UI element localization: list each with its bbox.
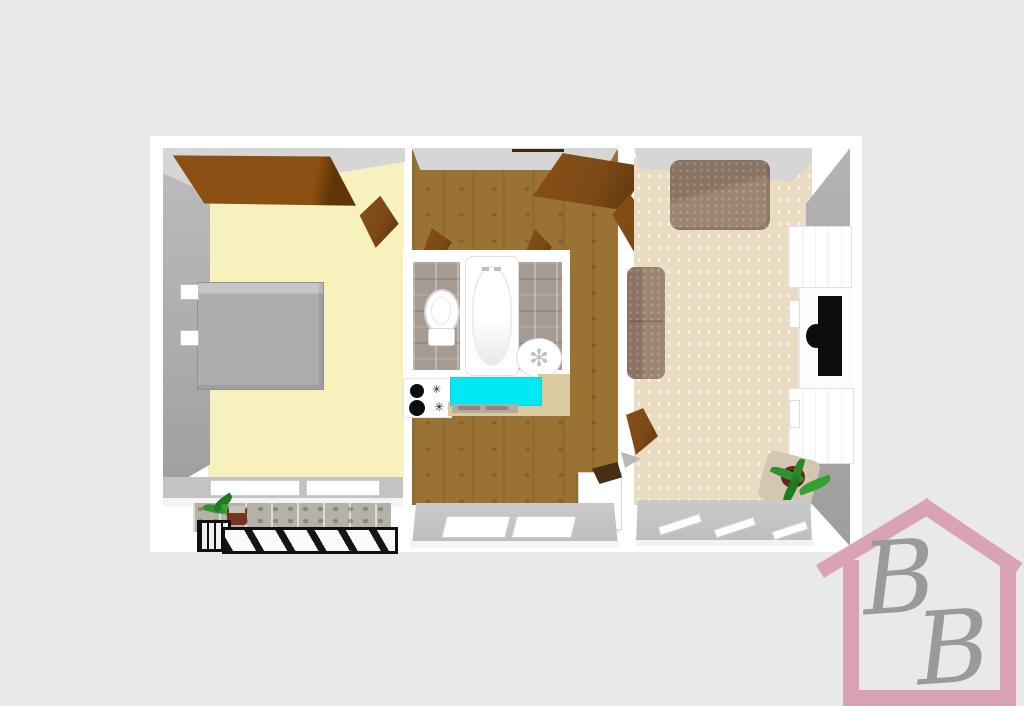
stove-burner <box>409 400 425 416</box>
bathtub-faucet <box>494 267 501 271</box>
bathtub-basin <box>472 266 512 366</box>
tv-unit-upper-cabinet <box>788 226 852 288</box>
living-window-sill <box>636 540 814 546</box>
sofa <box>670 160 770 230</box>
stove-burner <box>410 384 424 398</box>
round-sink: ✻ <box>516 338 562 378</box>
stove-knob-icon: ✳ <box>432 384 441 395</box>
double-bed <box>197 282 324 390</box>
bedroom-window-pane <box>210 480 300 496</box>
toilet-bowl <box>431 297 451 325</box>
entry-door-frame <box>512 149 564 152</box>
bed-pillow <box>180 330 199 346</box>
hallway-window-pane <box>441 516 510 538</box>
sink-flower-icon: ✻ <box>529 346 549 370</box>
hallway-window-pane <box>511 516 576 538</box>
logo-letter-b2: B <box>913 596 993 701</box>
tv-unit-side-panel <box>789 400 800 428</box>
logo-wall-right <box>1000 558 1016 706</box>
second-sofa <box>627 267 665 379</box>
counter-cyan-worktop <box>450 377 542 406</box>
drawer-handle <box>458 406 480 410</box>
tv-screen <box>818 296 842 376</box>
floorplan-render: ✻ ✳ ✳ B B <box>0 0 1024 706</box>
drawer-handle <box>486 406 508 410</box>
bathtub-faucet <box>482 267 489 271</box>
stove-knob-icon: ✳ <box>434 401 444 413</box>
hallway-window-sill <box>410 541 620 548</box>
second-sofa-seam <box>629 320 663 322</box>
balcony-plant-pot-top <box>229 506 245 513</box>
bedroom-window-pane <box>306 480 380 496</box>
tv-unit-side-panel <box>789 300 800 328</box>
balcony-railing <box>222 527 398 554</box>
logo-wall-left <box>843 560 859 706</box>
bed-pillow <box>180 284 199 300</box>
toilet-tank <box>428 328 455 346</box>
